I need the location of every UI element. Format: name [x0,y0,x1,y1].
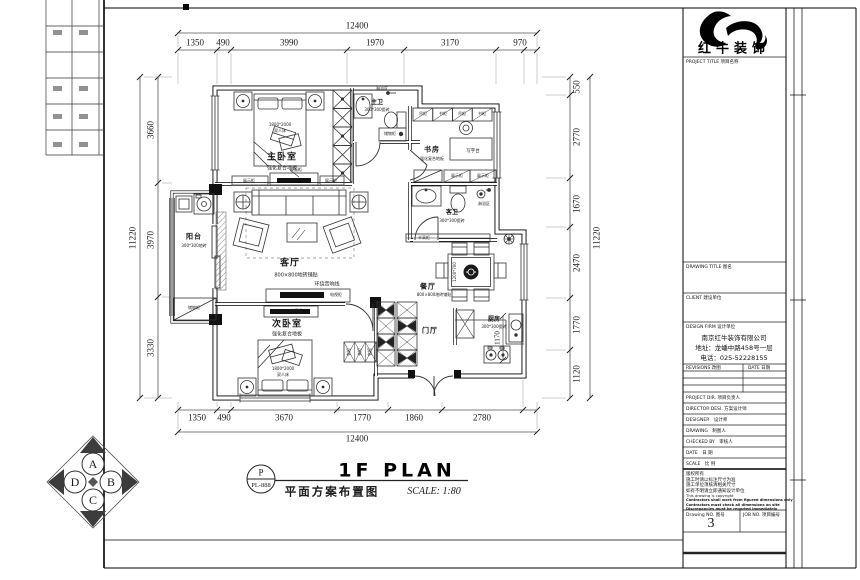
drawing-title-cn: 平面方案布置图 [285,486,380,498]
tb-note-8: Discrepancies must be reported immediate… [686,507,777,511]
room-master-bedroom: 主卧室 [267,154,297,163]
bedroom2-bed-size: 1800*2000 [272,367,294,371]
dim-right-total: 11220 [593,227,602,249]
bedroom2-wardrobe-3: 衣柜 [368,348,372,356]
room-balcony: 阳台 [186,234,202,241]
text-overlay: 12400 1350 490 3990 1970 3170 970 12400 … [0,0,860,580]
compass-d: D [71,476,80,488]
room-living: 客厅 [280,260,300,269]
compass-a: A [89,458,98,470]
room-foyer: 门厅 [422,328,438,335]
tb-note-7: Contractors must check all dimensions on… [686,503,780,507]
dining-half-cabinet: 半高柜 [418,236,430,240]
dining-floor: 800×800地砖铺贴 [417,293,452,297]
tb-row-project-dir: PROJECT DIR. 项目负责人 [686,395,740,401]
tb-note-6: Contractors shall work from figured dime… [686,498,793,502]
study-cabinet-2: 书柜 [439,112,447,116]
dim-left-1: 3660 [147,121,156,139]
tb-design-firm: DESIGN FIRM 设计单位 [686,324,735,330]
dim-right-6: 1120 [573,365,582,383]
tb-firm-phone: 电话：025-52228155 [700,352,767,362]
drawing-scale: SCALE: 1:80 [407,487,461,497]
room-kitchen: 厨房 [488,317,500,323]
dim-bottom-2: 490 [217,414,231,423]
tb-row-designer: DESIGNER 设计师 [686,417,727,423]
tb-job-no-label: JOB NO. 项目编号 [743,512,780,518]
room-master-bath: 主卫 [371,100,383,106]
dim-bottom-4: 1770 [353,414,371,423]
brand-name: 红牛装饰 [698,38,770,57]
bedroom2-floor: 强化复合地板 [272,333,302,338]
dim-left-total: 11220 [129,227,138,249]
study-cabinet-1: 吊柜 [419,112,427,116]
tb-row-drawing: DRAWING 制图人 [686,428,726,434]
dim-top-3: 3990 [280,39,298,48]
living-display-2: 展示柜 [325,179,337,183]
master-bed-label: 双人床 [274,129,286,133]
dim-bottom-5: 1860 [405,414,423,423]
tb-firm-name: 南京红牛装饰有限公司 [702,332,767,342]
tb-row-scale: SCALE 比 例 [686,461,715,467]
dim-right-4: 2470 [573,254,582,272]
room-dining: 餐厅 [420,284,436,291]
study-display-1: 展示柜 [451,174,463,178]
room-study: 书房 [424,147,440,154]
living-display-1: 展示柜 [243,179,255,183]
kitchen-floor: 300*300瓷砖 [481,325,506,329]
study-display-2: 展示柜 [477,174,489,178]
dim-right-5: 1770 [573,316,582,334]
room-bedroom2: 次卧室 [272,321,302,330]
dim-right-2: 2770 [573,128,582,146]
dim-top-total: 12400 [346,22,369,31]
master-bath-shower: 淋浴区 [376,87,388,91]
study-desk: 写字台 [466,150,480,155]
guest-bath-floor: 300*300瓷砖 [439,219,464,223]
study-cabinet-3: 吊柜 [458,112,466,116]
dining-table-size: 1200*700 [453,262,457,282]
compass-c: C [89,494,97,506]
living-audio: 环绕音响线 [314,283,339,288]
drawing-title-en: 1F PLAN [338,462,455,481]
compass-b: B [107,476,115,488]
tb-drawing-no: 3 [708,516,715,532]
dim-bottom-total: 12400 [346,435,369,444]
bedroom2-wardrobe-1: 衣柜 [347,348,351,356]
cad-sheet: 12400 1350 490 3990 1970 3170 970 12400 … [0,0,860,580]
master-bed-size: 1800*2000 [269,123,291,127]
tb-row-director: DIRECTOR DESI. 方案设计师 [686,406,747,412]
tb-drawing-title: DRAWING TITLE 图名 [686,264,732,270]
living-double-cabinet: 双面柜 [290,168,302,172]
balcony-cabinet: 储物柜 [188,306,200,310]
study-floor: 强化复合地板 [420,157,444,161]
stamp-code: PL-888 [251,483,271,490]
tb-date-col: DATE 日期 [748,365,770,371]
dim-top-4: 1970 [366,39,384,48]
tb-row-date: DATE 日 期 [686,450,713,456]
tb-firm-address: 地址：龙蟠中路458号一层 [695,342,772,352]
study-cabinet-4: 书柜 [478,112,486,116]
tb-client: CLIENT 建设单位 [686,295,721,301]
master-bath-cabinet: 储物柜 [384,132,396,136]
dim-top-1: 1350 [186,39,204,48]
balcony-floor: 300*300地砖 [181,244,206,248]
dim-right-1: 550 [573,80,582,94]
dim-right-3: 1670 [573,195,582,213]
dim-bottom-3: 3670 [275,414,293,423]
bedroom2-bed-label: 双人床 [277,373,289,377]
dim-top-2: 490 [216,39,230,48]
tb-project-title: PROJECT TITLE 项目名称 [686,59,738,65]
living-tv-cabinet: 电视柜 [330,293,342,297]
dim-left-2: 3970 [147,231,156,249]
tb-drawing-no-label: Drawing NO. 图号 [686,512,725,518]
living-floor: 800×800地砖铺贴 [274,274,317,279]
room-guest-bath: 客卫 [446,210,458,216]
dim-bottom-1: 1350 [188,414,206,423]
guest-bath-shower: 淋浴区 [478,202,490,206]
stamp-letter: P [258,469,263,478]
dim-bottom-6: 2780 [473,414,491,423]
master-bath-floor: 300*300瓷砖 [364,108,389,112]
bedroom2-tv-cabinet: 电视柜 [290,309,302,313]
dim-left-3: 3330 [147,339,156,357]
bedroom2-wardrobe-2: 衣柜 [358,348,362,356]
dim-top-6: 970 [513,39,527,48]
dim-kitchen: 1170 [495,331,502,345]
tb-revisions: REVISIONS 改图 [686,365,721,371]
dim-top-5: 3170 [441,39,459,48]
tb-row-checked: CHECKED BY 审核人 [686,439,733,445]
